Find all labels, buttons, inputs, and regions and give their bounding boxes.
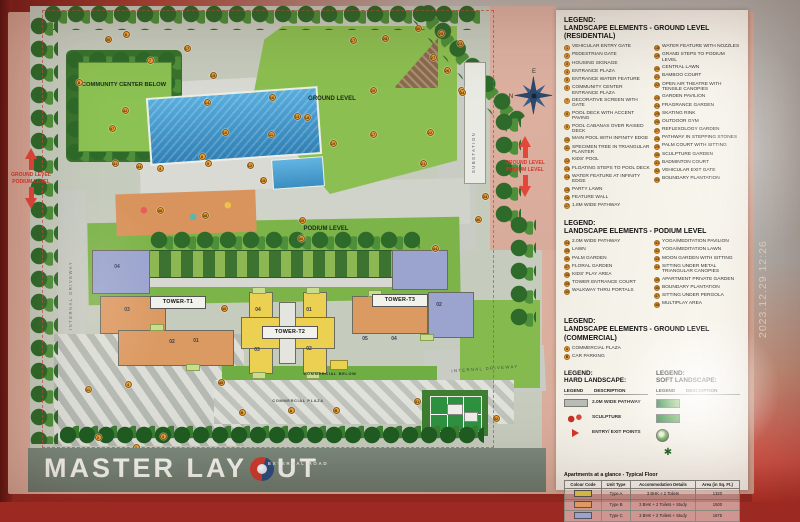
legend-item-label: GRAND STEPS TO PODIUM LEVEL bbox=[662, 52, 740, 63]
legend-item: 12KIDS' POOL bbox=[564, 157, 650, 163]
legend-item: 8POOL DECK WITH ACCENT PAVING bbox=[564, 111, 650, 122]
shrub-swatch-icon bbox=[656, 414, 680, 423]
legend-item-number: 17 bbox=[564, 203, 570, 209]
legend-item-number: 27 bbox=[654, 128, 660, 134]
colour-code-cell bbox=[565, 510, 602, 521]
legend-item: 47SITTING UNDER PERGOLA bbox=[654, 293, 740, 299]
legend-item-number: 47 bbox=[654, 293, 660, 299]
soft-landscape-rows bbox=[656, 399, 740, 458]
legend-title: HARD LANDSCAPE: bbox=[564, 377, 648, 384]
legend-item: 43MOON GARDEN WITH SITTING bbox=[654, 256, 740, 262]
legend-swatch-row: SCULPTURE bbox=[564, 413, 648, 423]
legend-item-number: 6 bbox=[564, 85, 570, 91]
apartments-row: Type B3 BHK + 2 Toilets + Study1500 bbox=[565, 499, 740, 510]
legend-item-label: POOL CABANAS OVER RAISED DECK bbox=[572, 124, 650, 135]
legend-item: 15PARTY LAWN bbox=[564, 187, 650, 193]
legend-item-number: 31 bbox=[654, 160, 660, 166]
legend-item: 32VEHICULAR EXIT GATE bbox=[654, 168, 740, 174]
legend-item-label: FLOATING STEPS TO POOL DECK bbox=[572, 166, 650, 172]
col-legend: LEGEND bbox=[656, 388, 686, 393]
legend-item-label: BADMINTON COURT bbox=[662, 160, 709, 166]
legend-item-label: OUTDOOR GYM bbox=[662, 119, 699, 125]
legend-item: 33BOUNDARY PLANTATION bbox=[654, 176, 740, 182]
legend-swatch-row bbox=[656, 448, 740, 458]
legend-item-number: 46 bbox=[654, 285, 660, 291]
plot-boundary-dashed-line bbox=[42, 10, 494, 448]
legend-item-number: 16 bbox=[564, 195, 570, 201]
legend-item: 18WATER FEATURE WITH NOZZLES bbox=[654, 44, 740, 50]
col-description: DESCRIPTION bbox=[594, 388, 625, 393]
legend-item-number: 25 bbox=[654, 111, 660, 117]
legend-section-commercial: LEGEND: LANDSCAPE ELEMENTS - GROUND LEVE… bbox=[564, 318, 740, 360]
legend-item: 27REFLEXOLOGY GARDEN bbox=[654, 127, 740, 133]
up-arrow-icon bbox=[25, 148, 37, 159]
legend-item-label: ENTRANCE PLAZA bbox=[572, 69, 615, 75]
legend-heading: LEGEND: bbox=[564, 318, 740, 326]
apartments-col-header: Accommodation Details bbox=[631, 480, 696, 488]
legend-item-number: 28 bbox=[654, 136, 660, 142]
commercial-items: ACOMMERCIAL PLAZABCAR PARKING bbox=[564, 346, 687, 361]
legend-item: 38KIDS' PLAY AREA bbox=[564, 272, 650, 278]
podium-items-col1: 342.0M WIDE PATHWAY35LAWN36PALM GARDEN37… bbox=[564, 239, 650, 309]
legend-item: 7DECORATIVE SCREEN WITH GATE bbox=[564, 98, 650, 109]
colour-code-cell bbox=[565, 499, 602, 510]
legend-subtitle: (COMMERCIAL) bbox=[564, 335, 740, 343]
legend-item-label: SITTING UNDER PERGOLA bbox=[662, 293, 724, 299]
legend-item-number: 13 bbox=[564, 166, 570, 172]
apartments-title: Apartments at a glance - Typical Floor bbox=[564, 472, 740, 478]
legend-item-label: 1.8M WIDE PATHWAY bbox=[572, 203, 620, 209]
legend-item: 25SKATING RINK bbox=[654, 111, 740, 117]
legend-item-number: 42 bbox=[654, 248, 660, 254]
legend-item-number: 15 bbox=[564, 187, 570, 193]
legend-item-number: 2 bbox=[564, 53, 570, 59]
legend-item-label: PALM GARDEN bbox=[572, 256, 607, 262]
legend-heading: LEGEND: bbox=[656, 370, 740, 377]
tree-icon bbox=[656, 429, 669, 442]
legend-item-label: BOUNDARY PLANTATION bbox=[662, 176, 720, 182]
legend-item: 14WATER FEATURE AT INFINITY EDGE bbox=[564, 174, 650, 185]
compass-left-letter: N bbox=[509, 94, 513, 100]
legend-item-label: COMMERCIAL PLAZA bbox=[572, 346, 621, 352]
external-road-label: EXTERNAL ROAD bbox=[268, 461, 328, 466]
compass-top-letter: E bbox=[532, 69, 536, 75]
legend-item-label: HOUSING SIGNAGE bbox=[572, 61, 618, 67]
legend-heading: LEGEND: bbox=[564, 17, 740, 25]
legend-item-label: FEATURE WALL bbox=[572, 195, 608, 201]
tower-t2-label: TOWER-T2 bbox=[262, 326, 318, 339]
legend-item-label: YOGA/MEDITATION LAWN bbox=[662, 247, 721, 253]
legend-item-label: SCULPTURE GARDEN bbox=[662, 152, 713, 158]
legend-item: 22OPEN AIR THEATRE WITH TENSILE CANOPIES bbox=[654, 82, 740, 93]
apartments-row: Type A3 BHK + 2 Toilets1320 bbox=[565, 488, 740, 499]
legend-title: LANDSCAPE ELEMENTS - PODIUM LEVEL bbox=[564, 228, 740, 236]
legend-item-number: 40 bbox=[564, 289, 570, 295]
ground-level-label: GROUND LEVEL bbox=[296, 96, 368, 102]
legend-item-label: MAIN POOL WITH INFINITY EDGE bbox=[572, 136, 648, 142]
residential-items-col1: 1VEHICULAR ENTRY GATE2PEDESTRIAN GATE3HO… bbox=[564, 44, 650, 211]
legend-item-number: 48 bbox=[654, 302, 660, 308]
legend-item-label: VEHICULAR EXIT GATE bbox=[662, 168, 715, 174]
legend-item-number: 30 bbox=[654, 152, 660, 158]
legend-item-label: YOGA/MEDITATION PAVILION bbox=[662, 239, 729, 245]
legend-item-number: B bbox=[564, 354, 570, 360]
legend-item-label: COMMUNITY CENTER ENTRANCE PLAZA bbox=[572, 85, 650, 96]
legend-swatch-row bbox=[656, 414, 740, 423]
path-swatch-icon bbox=[564, 399, 588, 407]
level-indicator-line2: PODIUM LEVEL bbox=[506, 167, 544, 173]
legend-item: 9POOL CABANAS OVER RAISED DECK bbox=[564, 124, 650, 135]
legend-item-number: 20 bbox=[654, 66, 660, 72]
level-indicator-left: GROUND LEVEL PODIUM LEVEL bbox=[2, 148, 60, 209]
title-part2: UT bbox=[277, 453, 319, 484]
legend-item: ACOMMERCIAL PLAZA bbox=[564, 346, 687, 352]
legend-panel: LEGEND: LANDSCAPE ELEMENTS - GROUND LEVE… bbox=[556, 10, 748, 490]
apartments-section: Apartments at a glance - Typical Floor C… bbox=[564, 472, 740, 522]
legend-heading: LEGEND: bbox=[564, 370, 648, 377]
down-arrow-icon bbox=[25, 198, 37, 209]
unit-type-cell: Type A bbox=[601, 488, 630, 499]
legend-item-number: 1 bbox=[564, 45, 570, 51]
legend-item-label: REFLEXOLOGY GARDEN bbox=[662, 127, 720, 133]
legend-item-label: MULTIPLAY AREA bbox=[662, 301, 702, 307]
legend-item-number: 10 bbox=[564, 137, 570, 143]
legend-item-number: 19 bbox=[654, 53, 660, 59]
apartments-table: Colour CodeUnit TypeAccommodation Detail… bbox=[564, 480, 740, 522]
legend-item-label: WATER FEATURE WITH NOZZLES bbox=[662, 44, 739, 50]
area-cell: 1675 bbox=[695, 510, 739, 521]
legend-item-label: APARTMENT PRIVATE GARDEN bbox=[662, 277, 734, 283]
legend-item: 10MAIN POOL WITH INFINITY EDGE bbox=[564, 136, 650, 142]
arrow-stem bbox=[29, 159, 34, 170]
legend-item: BCAR PARKING bbox=[564, 354, 687, 360]
apartments-row: Type C3 BHK + 2 Toilets + Study1675 bbox=[565, 510, 740, 521]
legend-item: 20CENTRAL LAWN bbox=[654, 65, 740, 71]
legend-title: SOFT LANDSCAPE: bbox=[656, 377, 740, 384]
area-cell: 1500 bbox=[695, 499, 739, 510]
legend-item-label: BAMBOO COURT bbox=[662, 73, 701, 79]
commercial-plaza-label: COMMERCIAL PLAZA bbox=[238, 398, 358, 403]
legend-item: 2PEDESTRIAN GATE bbox=[564, 52, 650, 58]
tower-t3-label: TOWER-T3 bbox=[372, 294, 428, 307]
legend-item-number: 29 bbox=[654, 144, 660, 150]
page-title: MASTER LAYUT bbox=[44, 453, 319, 484]
apartments-col-header: Colour Code bbox=[565, 480, 602, 488]
legend-item: 45APARTMENT PRIVATE GARDEN bbox=[654, 277, 740, 283]
apartments-col-header: Unit Type bbox=[601, 480, 630, 488]
legend-swatch-row: ENTRY/ EXIT POINTS bbox=[564, 429, 648, 437]
legend-item-number: 24 bbox=[654, 103, 660, 109]
legend-subtitle: (RESIDENTIAL) bbox=[564, 33, 740, 41]
legend-item-label: OPEN AIR THEATRE WITH TENSILE CANOPIES bbox=[662, 82, 740, 93]
col-description: DESCRIPTION bbox=[686, 388, 717, 393]
down-arrow-icon bbox=[519, 186, 531, 197]
legend-item-label: FRAGRANCE GARDEN bbox=[662, 103, 714, 109]
accommodation-cell: 3 BHK + 2 Toilets + Study bbox=[631, 510, 696, 521]
legend-item: 342.0M WIDE PATHWAY bbox=[564, 239, 650, 245]
hard-landscape-rows: 2.0M WIDE PATHWAYSCULPTUREENTRY/ EXIT PO… bbox=[564, 399, 648, 437]
legend-item-number: A bbox=[564, 346, 570, 352]
sculpture-icon bbox=[564, 413, 588, 423]
legend-item-label: PARTY LAWN bbox=[572, 187, 602, 193]
title-part1: MASTER LAY bbox=[44, 453, 247, 484]
legend-item-label: LAWN bbox=[572, 247, 586, 253]
podium-level-label: PODIUM LEVEL bbox=[294, 226, 358, 232]
soft-landscape-legend: LEGEND: SOFT LANDSCAPE: LEGENDDESCRIPTIO… bbox=[656, 370, 740, 464]
legend-item: 40WALKWAY THRU PORTALS bbox=[564, 288, 650, 294]
legend-item: 48MULTIPLAY AREA bbox=[654, 301, 740, 307]
legend-section-podium: LEGEND: LANDSCAPE ELEMENTS - PODIUM LEVE… bbox=[564, 220, 740, 309]
legend-item-label: PALM COURT WITH SITTING bbox=[662, 143, 727, 149]
legend-item-label: GARDEN PAVILION bbox=[662, 94, 705, 100]
legend-item-number: 12 bbox=[564, 158, 570, 164]
legend-item-number: 8 bbox=[564, 111, 570, 117]
tower-t1-label: TOWER-T1 bbox=[150, 296, 206, 309]
legend-item: 28PATHWAY IN STEPPING STONES bbox=[654, 135, 740, 141]
legend-item: 30SCULPTURE GARDEN bbox=[654, 152, 740, 158]
legend-item-label: TOWER ENTRANCE COURT bbox=[572, 280, 636, 286]
legend-item-label: CENTRAL LAWN bbox=[662, 65, 699, 71]
legend-item-number: 4 bbox=[564, 69, 570, 75]
camera-timestamp: 2023.12.29 12:26 bbox=[757, 178, 769, 338]
legend-item-label: DECORATIVE SCREEN WITH GATE bbox=[572, 98, 650, 109]
legend-item: 16FEATURE WALL bbox=[564, 195, 650, 201]
apartments-body: Type A3 BHK + 2 Toilets1320Type B3 BHK +… bbox=[565, 488, 740, 521]
entry-arrow-icon bbox=[572, 429, 579, 437]
legend-item: 21BAMBOO COURT bbox=[654, 73, 740, 79]
legend-item: 29PALM COURT WITH SITTING bbox=[654, 143, 740, 149]
lawn-swatch-icon bbox=[656, 399, 680, 408]
legend-item: 11SPECIMEN TREE IN TRIANGULAR PLANTER bbox=[564, 145, 650, 156]
unit-type-cell: Type B bbox=[601, 499, 630, 510]
legend-heading: LEGEND: bbox=[564, 220, 740, 228]
legend-item: 171.8M WIDE PATHWAY bbox=[564, 203, 650, 209]
legend-item-label: SITTING UNDER METAL TRIANGULAR CANOPIES bbox=[662, 264, 740, 275]
legend-item: 5ENTRANCE WATER FEATURE bbox=[564, 77, 650, 83]
legend-item-number: 21 bbox=[654, 74, 660, 80]
arrow-stem bbox=[29, 187, 34, 198]
legend-item-label: WATER FEATURE AT INFINITY EDGE bbox=[572, 174, 650, 185]
legend-item-number: 32 bbox=[654, 168, 660, 174]
level-indicator-line1: GROUND LEVEL bbox=[505, 160, 545, 166]
legend-item-number: 39 bbox=[564, 281, 570, 287]
legend-swatch-label: ENTRY/ EXIT POINTS bbox=[592, 430, 641, 436]
legend-item-number: 5 bbox=[564, 77, 570, 83]
legend-item-number: 26 bbox=[654, 119, 660, 125]
level-indicator-line2: PODIUM LEVEL bbox=[12, 179, 50, 185]
boundary-trees-east-lower bbox=[510, 215, 536, 330]
residential-items-col2: 18WATER FEATURE WITH NOZZLES19GRAND STEP… bbox=[654, 44, 740, 211]
legend-item-number: 41 bbox=[654, 240, 660, 246]
legend-swatch-row bbox=[656, 429, 740, 442]
legend-item-label: MOON GARDEN WITH SITTING bbox=[662, 256, 733, 262]
legend-item-label: KIDS' PLAY AREA bbox=[572, 272, 611, 278]
legend-item-number: 14 bbox=[564, 174, 570, 180]
colour-code-cell bbox=[565, 488, 602, 499]
legend-item: 46BOUNDARY PLANTATION bbox=[654, 285, 740, 291]
compass-icon: E S W N bbox=[502, 64, 554, 116]
legend-item-number: 44 bbox=[654, 264, 660, 270]
legend-item: 35LAWN bbox=[564, 247, 650, 253]
legend-title: LANDSCAPE ELEMENTS - GROUND LEVEL bbox=[564, 326, 740, 334]
colour-swatch bbox=[574, 490, 592, 497]
legend-item: 41YOGA/MEDITATION PAVILION bbox=[654, 239, 740, 245]
legend-item-label: POOL DECK WITH ACCENT PAVING bbox=[572, 111, 650, 122]
up-arrow-icon bbox=[519, 136, 531, 147]
legend-item-number: 22 bbox=[654, 82, 660, 88]
legend-item-label: 2.0M WIDE PATHWAY bbox=[572, 239, 620, 245]
legend-item: 6COMMUNITY CENTER ENTRANCE PLAZA bbox=[564, 85, 650, 96]
legend-item: 36PALM GARDEN bbox=[564, 256, 650, 262]
apartments-header-row: Colour CodeUnit TypeAccommodation Detail… bbox=[565, 480, 740, 488]
legend-item-label: VEHICULAR ENTRY GATE bbox=[572, 44, 631, 50]
legend-item-label: SKATING RINK bbox=[662, 111, 696, 117]
legend-swatch-row bbox=[656, 399, 740, 408]
legend-item-label: SPECIMEN TREE IN TRIANGULAR PLANTER bbox=[572, 145, 650, 156]
unit-type-cell: Type C bbox=[601, 510, 630, 521]
legend-item-label: BOUNDARY PLANTATION bbox=[662, 285, 720, 291]
legend-section-residential: LEGEND: LANDSCAPE ELEMENTS - GROUND LEVE… bbox=[564, 17, 740, 211]
level-indicator-line1: GROUND LEVEL bbox=[11, 172, 51, 178]
legend-item-number: 35 bbox=[564, 248, 570, 254]
legend-item-label: ENTRANCE WATER FEATURE bbox=[572, 77, 640, 83]
legend-swatch-label: SCULPTURE bbox=[592, 415, 621, 421]
accommodation-cell: 3 BHK + 2 Toilets bbox=[631, 488, 696, 499]
legend-item-number: 11 bbox=[564, 145, 570, 151]
legend-item-number: 38 bbox=[564, 272, 570, 278]
legend-item: 4ENTRANCE PLAZA bbox=[564, 69, 650, 75]
logo-core bbox=[257, 464, 267, 474]
accommodation-cell: 3 BHK + 2 Toilets + Study bbox=[631, 499, 696, 510]
legend-item-number: 34 bbox=[564, 240, 570, 246]
legend-item-number: 7 bbox=[564, 98, 570, 104]
legend-item: 1VEHICULAR ENTRY GATE bbox=[564, 44, 650, 50]
level-indicator-right: GROUND LEVEL PODIUM LEVEL bbox=[496, 136, 554, 197]
legend-swatch-label: 2.0M WIDE PATHWAY bbox=[592, 400, 641, 406]
palm-icon bbox=[656, 448, 680, 458]
internal-driveway-left-label: INTERNAL DRIVEWAY bbox=[68, 230, 73, 360]
legend-item-number: 18 bbox=[654, 45, 660, 51]
legend-item-label: PEDESTRIAN GATE bbox=[572, 52, 617, 58]
legend-item-number: 45 bbox=[654, 277, 660, 283]
legend-item: 37FLORAL GARDEN bbox=[564, 264, 650, 270]
legend-item: 23GARDEN PAVILION bbox=[654, 94, 740, 100]
arrow-stem bbox=[523, 147, 528, 158]
arrow-stem bbox=[523, 175, 528, 186]
legend-item: 44SITTING UNDER METAL TRIANGULAR CANOPIE… bbox=[654, 264, 740, 275]
legend-item: 31BADMINTON COURT bbox=[654, 160, 740, 166]
legend-item: 3HOUSING SIGNAGE bbox=[564, 61, 650, 67]
legend-item-label: CAR PARKING bbox=[572, 354, 605, 360]
legend-section-hard-soft: LEGEND: HARD LANDSCAPE: LEGENDDESCRIPTIO… bbox=[564, 370, 740, 464]
legend-item-number: 23 bbox=[654, 95, 660, 101]
legend-item-number: 36 bbox=[564, 256, 570, 262]
col-legend: LEGEND bbox=[564, 388, 594, 393]
legend-item-label: PATHWAY IN STEPPING STONES bbox=[662, 135, 737, 141]
colour-swatch bbox=[574, 512, 592, 519]
legend-item-number: 9 bbox=[564, 124, 570, 130]
apartments-col-header: Area (in Sq. Ft.) bbox=[695, 480, 739, 488]
legend-item-number: 3 bbox=[564, 61, 570, 67]
commercial-below-label: COMMERCIAL BELOW bbox=[250, 371, 410, 376]
area-cell: 1320 bbox=[695, 488, 739, 499]
legend-item-number: 37 bbox=[564, 264, 570, 270]
legend-item-label: WALKWAY THRU PORTALS bbox=[572, 288, 634, 294]
legend-item: 19GRAND STEPS TO PODIUM LEVEL bbox=[654, 52, 740, 63]
podium-items-col2: 41YOGA/MEDITATION PAVILION42YOGA/MEDITAT… bbox=[654, 239, 740, 309]
legend-item: 24FRAGRANCE GARDEN bbox=[654, 103, 740, 109]
hard-landscape-legend: LEGEND: HARD LANDSCAPE: LEGENDDESCRIPTIO… bbox=[564, 370, 648, 464]
legend-item: 39TOWER ENTRANCE COURT bbox=[564, 280, 650, 286]
legend-item-number: 43 bbox=[654, 256, 660, 262]
legend-item: 42YOGA/MEDITATION LAWN bbox=[654, 247, 740, 253]
legend-item-label: KIDS' POOL bbox=[572, 157, 599, 163]
legend-item: 13FLOATING STEPS TO POOL DECK bbox=[564, 166, 650, 172]
legend-item-number: 33 bbox=[654, 177, 660, 183]
legend-item: 26OUTDOOR GYM bbox=[654, 119, 740, 125]
legend-swatch-row: 2.0M WIDE PATHWAY bbox=[564, 399, 648, 407]
legend-title: LANDSCAPE ELEMENTS - GROUND LEVEL bbox=[564, 25, 740, 33]
legend-item-label: FLORAL GARDEN bbox=[572, 264, 612, 270]
